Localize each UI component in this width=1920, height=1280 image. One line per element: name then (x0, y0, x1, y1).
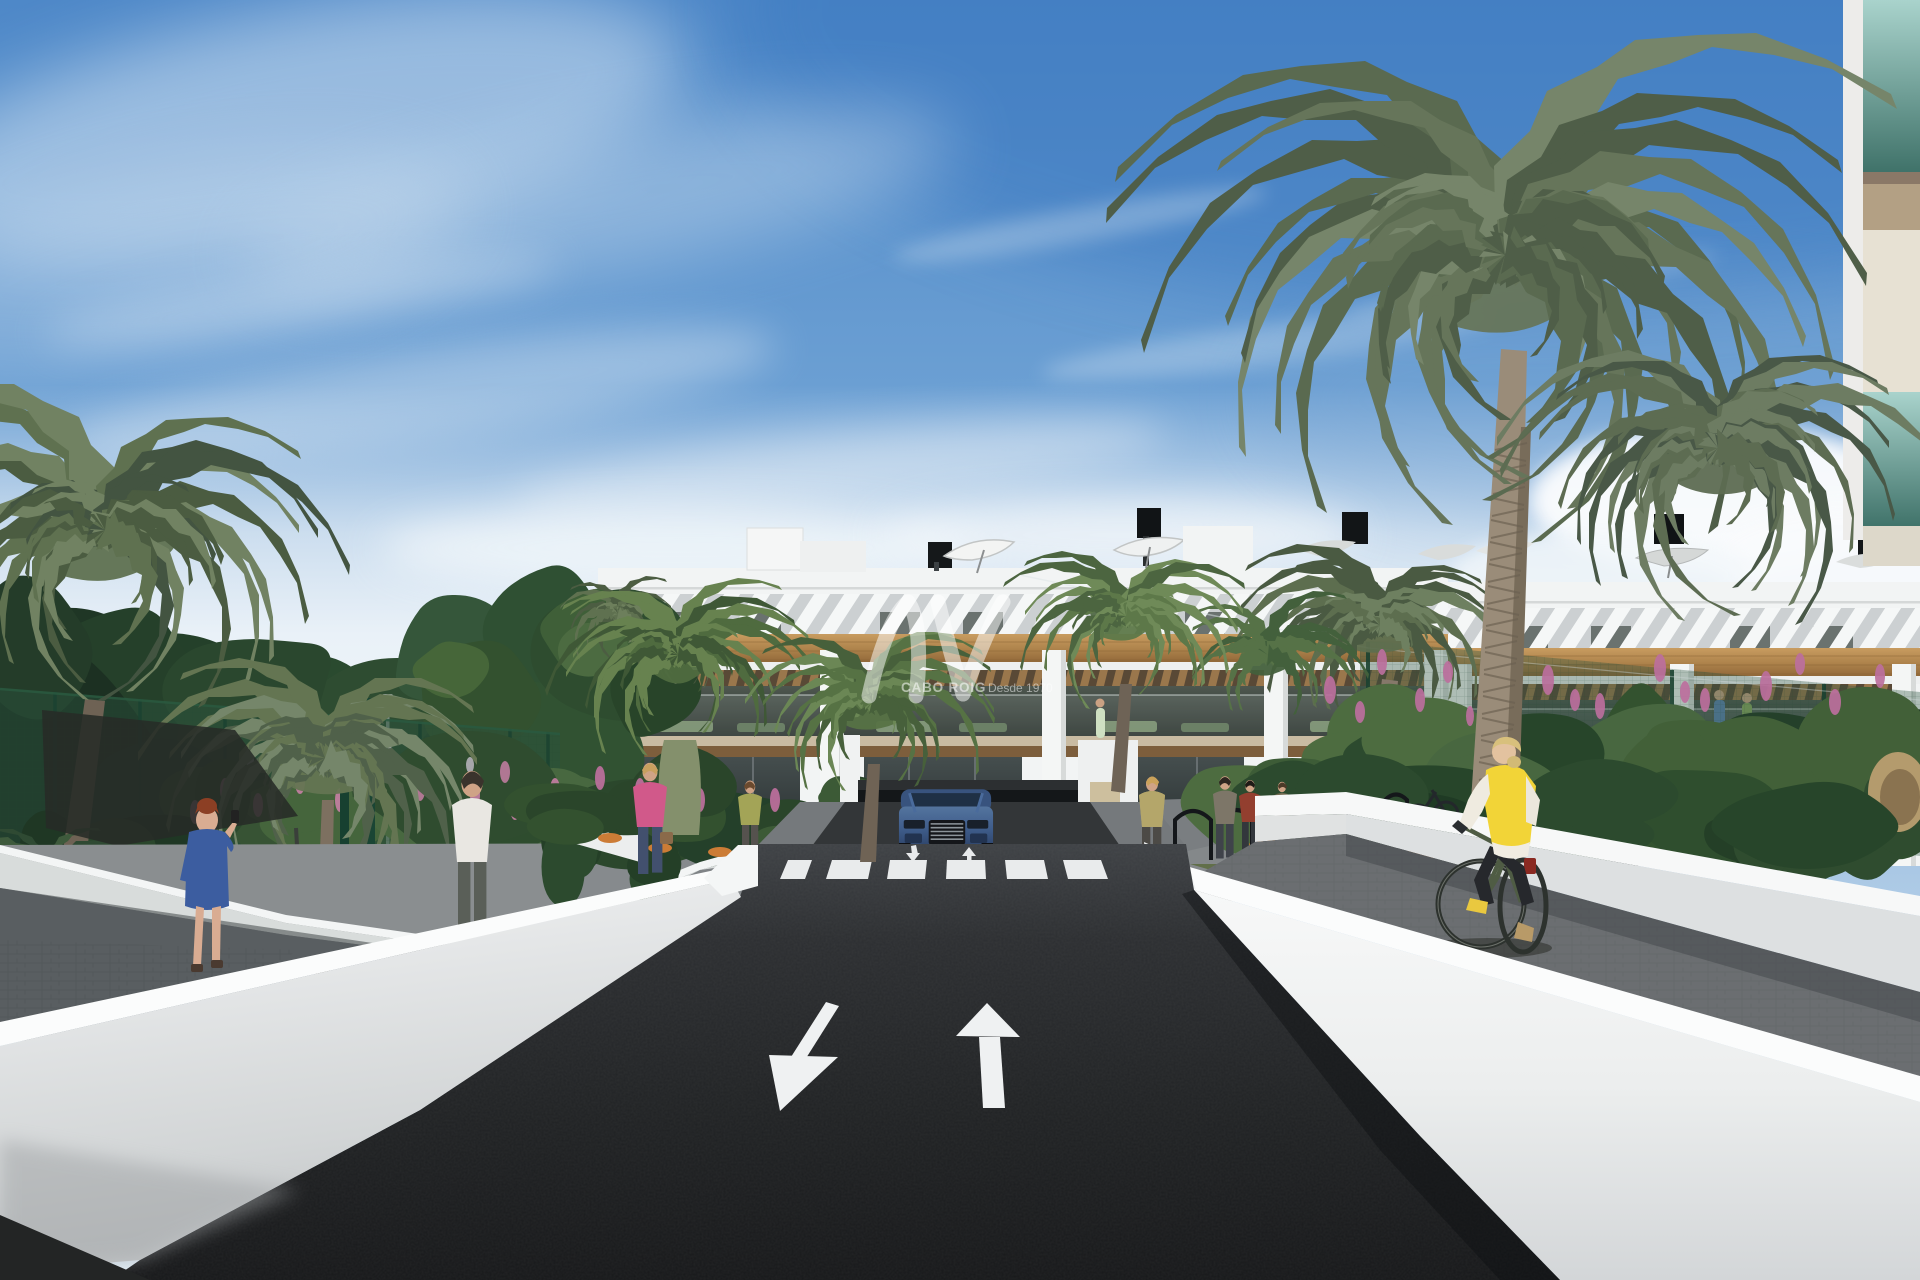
svg-text:CABO ROIG: CABO ROIG (901, 680, 986, 695)
svg-text:Desde 1970: Desde 1970 (988, 681, 1053, 695)
